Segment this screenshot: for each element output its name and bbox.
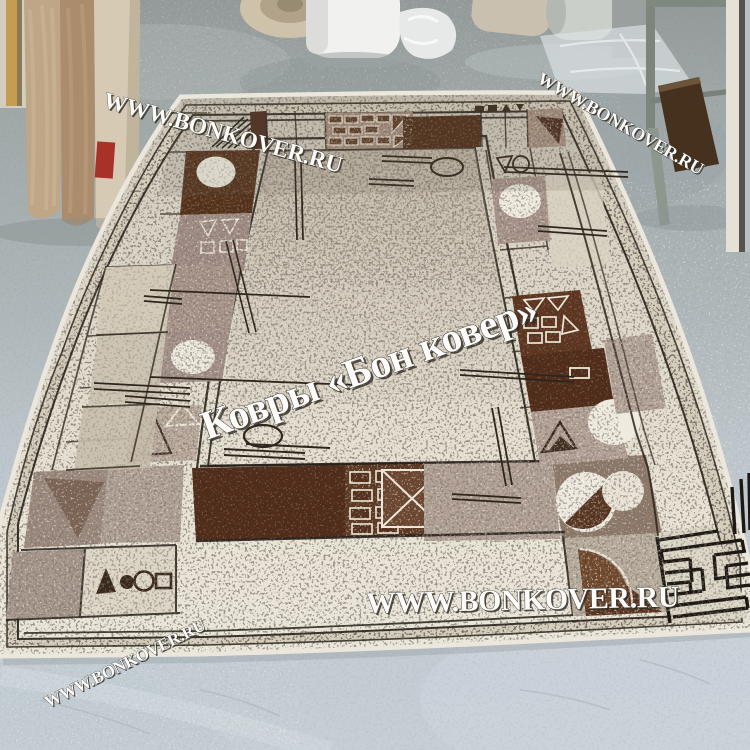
svg-text:WWW.BONKOVER.RU: WWW.BONKOVER.RU <box>365 580 679 620</box>
